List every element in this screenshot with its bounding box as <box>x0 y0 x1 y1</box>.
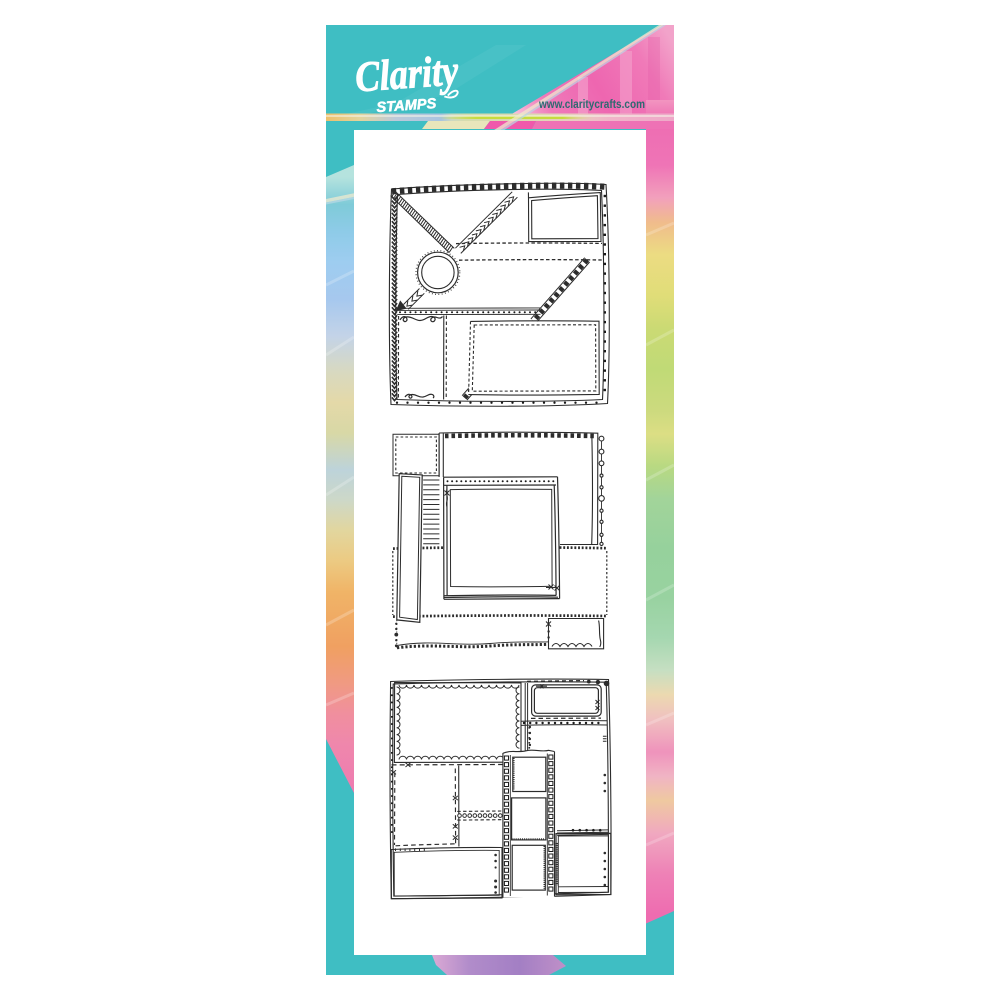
svg-text:STAMPS: STAMPS <box>376 96 437 116</box>
svg-text:Clarity: Clarity <box>354 47 461 101</box>
svg-text:www.claritycrafts.com: www.claritycrafts.com <box>538 97 645 111</box>
